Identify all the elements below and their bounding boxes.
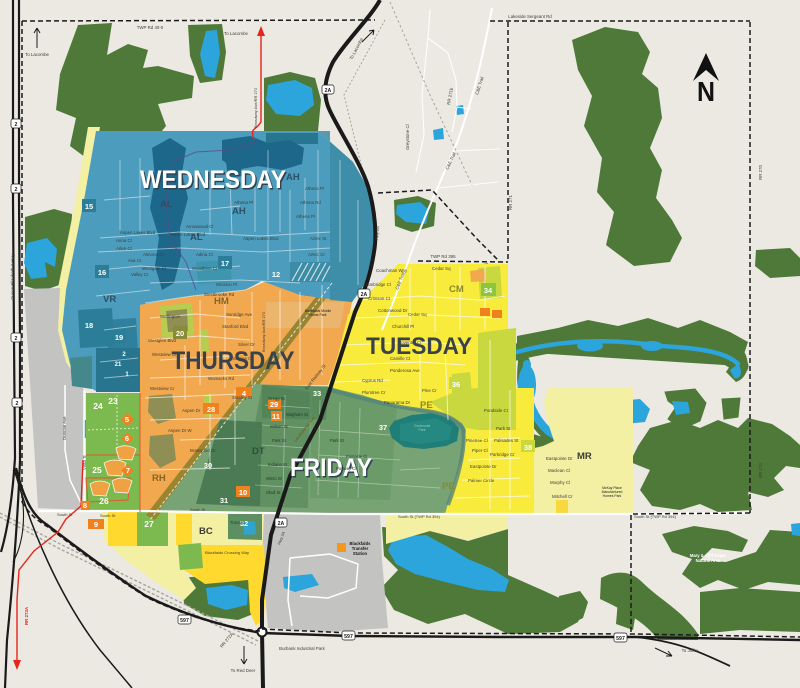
- svg-text:CM: CM: [449, 284, 464, 295]
- svg-text:Coventry Cl: Coventry Cl: [398, 340, 421, 345]
- svg-text:6: 6: [125, 434, 129, 443]
- svg-text:Waghorn St: Waghorn St: [286, 412, 309, 417]
- svg-text:South St: South St: [57, 512, 73, 517]
- svg-text:Westview Cr: Westview Cr: [150, 386, 175, 391]
- svg-text:Aspen Lakes Blvd: Aspen Lakes Blvd: [170, 232, 206, 237]
- svg-text:18: 18: [85, 321, 93, 330]
- svg-text:24: 24: [93, 401, 103, 411]
- svg-text:Palmer Circle: Palmer Circle: [468, 478, 495, 483]
- svg-text:TUESDAY: TUESDAY: [366, 333, 472, 360]
- svg-text:Panorama Dr: Panorama Dr: [384, 400, 411, 405]
- svg-text:MR: MR: [577, 451, 592, 462]
- svg-text:To Joffre: To Joffre: [682, 648, 699, 653]
- svg-text:Aspen Dr: Aspen Dr: [182, 408, 201, 413]
- svg-text:Woodbine Cl: Woodbine Cl: [192, 266, 217, 271]
- svg-text:Plumtree Cr: Plumtree Cr: [362, 390, 386, 395]
- svg-text:597: 597: [344, 634, 353, 640]
- svg-text:31: 31: [220, 496, 228, 505]
- svg-text:23: 23: [108, 396, 118, 406]
- svg-text:17: 17: [221, 259, 229, 268]
- svg-text:Duncan Ave: Duncan Ave: [62, 416, 67, 440]
- svg-text:Wilson St: Wilson St: [270, 424, 289, 429]
- svg-text:Coachman Way: Coachman Way: [376, 268, 408, 273]
- svg-text:12: 12: [272, 270, 280, 279]
- svg-text:Park St: Park St: [496, 426, 511, 431]
- svg-text:Cyprus Rd: Cyprus Rd: [362, 378, 383, 383]
- svg-text:2: 2: [16, 401, 19, 407]
- svg-text:TWP Rd 395: TWP Rd 395: [430, 254, 456, 259]
- svg-text:Park: Park: [419, 428, 426, 432]
- svg-text:Station: Station: [353, 551, 368, 556]
- svg-text:Cedar Sq: Cedar Sq: [432, 266, 451, 271]
- svg-text:Park St: Park St: [330, 438, 345, 443]
- svg-text:Womacks Rd: Womacks Rd: [208, 376, 235, 381]
- svg-text:Valley Cr: Valley Cr: [131, 272, 149, 277]
- svg-text:Churchill Pl: Churchill Pl: [392, 324, 414, 329]
- svg-text:Stanford Blvd: Stanford Blvd: [222, 324, 249, 329]
- svg-text:Murphy Cl: Murphy Cl: [550, 480, 570, 485]
- svg-text:11: 11: [272, 412, 280, 421]
- svg-text:Sunrise Cl: Sunrise Cl: [232, 356, 252, 361]
- svg-text:34: 34: [484, 286, 493, 295]
- svg-text:Eastpointe Dr: Eastpointe Dr: [546, 456, 573, 461]
- svg-text:Westview Cr: Westview Cr: [152, 352, 177, 357]
- svg-text:To Red Deer: To Red Deer: [231, 668, 256, 673]
- svg-text:37: 37: [379, 423, 387, 432]
- svg-text:Pinetree Cl: Pinetree Cl: [466, 438, 488, 443]
- svg-text:7: 7: [126, 466, 130, 475]
- svg-text:RH: RH: [152, 473, 166, 484]
- svg-text:Silver Dr: Silver Dr: [238, 342, 255, 347]
- svg-text:Ponderosa Ave: Ponderosa Ave: [390, 368, 420, 373]
- svg-text:Branwood Dr: Branwood Dr: [190, 448, 216, 453]
- svg-text:Vista Tr: Vista Tr: [82, 455, 87, 470]
- svg-text:Mitchell Cr: Mitchell Cr: [552, 494, 573, 499]
- svg-text:Piper Cl: Piper Cl: [472, 448, 488, 453]
- svg-text:Aztec Cr: Aztec Cr: [308, 252, 325, 257]
- svg-text:Palisades St: Palisades St: [494, 438, 519, 443]
- svg-text:Aspen Dr W: Aspen Dr W: [168, 428, 193, 433]
- svg-text:Anna Cl: Anna Cl: [116, 238, 132, 243]
- svg-text:Adina Cl: Adina Cl: [196, 252, 213, 257]
- svg-text:THURSDAY: THURSDAY: [172, 347, 295, 375]
- svg-text:N: N: [697, 76, 715, 107]
- svg-text:Westbrooke Rd: Westbrooke Rd: [204, 292, 235, 297]
- svg-text:Home Park: Home Park: [310, 313, 327, 317]
- svg-text:2A: 2A: [325, 88, 332, 94]
- svg-text:RR 271: RR 271: [508, 195, 513, 210]
- svg-text:30: 30: [204, 461, 212, 470]
- svg-text:Athens Pl: Athens Pl: [305, 186, 324, 191]
- svg-text:To Lacombe: To Lacombe: [224, 31, 248, 36]
- svg-text:28: 28: [207, 405, 215, 414]
- svg-text:Burbank Industrial Park: Burbank Industrial Park: [279, 646, 325, 651]
- svg-text:Wellington: Wellington: [160, 314, 181, 319]
- svg-text:Pine Cr: Pine Cr: [422, 388, 437, 393]
- svg-text:Trout St: Trout St: [230, 520, 246, 525]
- svg-text:Cottonwood Dr: Cottonwood Dr: [378, 308, 408, 313]
- svg-text:Arrowwood Cl: Arrowwood Cl: [186, 224, 213, 229]
- svg-text:Park St: Park St: [272, 438, 287, 443]
- svg-text:Natural Area: Natural Area: [696, 558, 721, 563]
- svg-text:20: 20: [176, 329, 184, 338]
- svg-text:Aspen Lakes Blvd: Aspen Lakes Blvd: [120, 230, 156, 235]
- svg-text:HM: HM: [214, 296, 229, 307]
- svg-text:Blackfalds Crossing Way: Blackfalds Crossing Way: [205, 550, 249, 555]
- svg-text:Westglen Blvd: Westglen Blvd: [148, 338, 177, 343]
- svg-text:597: 597: [616, 636, 625, 642]
- svg-text:South St (TWP Rd 394): South St (TWP Rd 394): [398, 514, 441, 519]
- svg-text:Almond Cr: Almond Cr: [143, 252, 164, 257]
- svg-text:5: 5: [125, 415, 129, 424]
- svg-text:Portway Cl: Portway Cl: [336, 466, 356, 471]
- svg-text:Sunridge Ave: Sunridge Ave: [226, 312, 253, 317]
- svg-text:Aapen Lakes Blvd: Aapen Lakes Blvd: [243, 236, 279, 241]
- svg-text:BC: BC: [199, 526, 213, 537]
- svg-text:29: 29: [270, 400, 278, 409]
- svg-text:597: 597: [180, 618, 189, 624]
- svg-text:Eastpointe Dr: Eastpointe Dr: [470, 464, 497, 469]
- svg-text:33: 33: [313, 389, 321, 398]
- svg-text:RR 270: RR 270: [758, 463, 763, 478]
- svg-text:Shull St: Shull St: [266, 490, 281, 495]
- svg-text:AH: AH: [232, 206, 246, 217]
- svg-text:Crimson Ct: Crimson Ct: [368, 296, 391, 301]
- svg-text:16: 16: [98, 268, 106, 277]
- svg-text:2: 2: [15, 187, 18, 193]
- svg-text:Parkridge Cr: Parkridge Cr: [490, 452, 515, 457]
- svg-text:RR 270: RR 270: [758, 165, 763, 180]
- svg-text:South St: South St: [190, 507, 206, 512]
- svg-text:To Lacombe: To Lacombe: [25, 52, 49, 57]
- svg-text:Arlen Cl: Arlen Cl: [116, 246, 132, 251]
- svg-text:WEDNESDAY: WEDNESDAY: [140, 166, 286, 194]
- svg-text:Gregg St: Gregg St: [268, 396, 286, 401]
- svg-text:25: 25: [92, 465, 102, 475]
- svg-text:Broadway Ave/RR 272: Broadway Ave/RR 272: [253, 87, 258, 128]
- svg-text:36: 36: [452, 380, 460, 389]
- svg-text:RR 273A: RR 273A: [24, 606, 29, 625]
- svg-text:TWP Rd 40-0: TWP Rd 40-0: [137, 25, 164, 30]
- svg-text:VR: VR: [103, 294, 116, 305]
- svg-text:Winston Pl: Winston Pl: [216, 282, 237, 287]
- svg-text:Indiana St: Indiana St: [268, 462, 288, 467]
- svg-text:19: 19: [115, 333, 123, 342]
- svg-text:27: 27: [144, 519, 154, 529]
- svg-text:2: 2: [15, 336, 18, 342]
- svg-text:Cedar Sq: Cedar Sq: [408, 312, 427, 317]
- svg-text:21: 21: [115, 362, 122, 368]
- svg-text:AL: AL: [160, 199, 173, 210]
- svg-text:Athena Rd: Athena Rd: [300, 200, 321, 205]
- svg-text:Pondside Cr: Pondside Cr: [484, 408, 509, 413]
- svg-text:8: 8: [83, 501, 87, 510]
- svg-text:South St (TWP Rd 394): South St (TWP Rd 394): [634, 514, 677, 519]
- svg-text:15: 15: [85, 202, 93, 211]
- svg-text:DT: DT: [252, 446, 265, 457]
- svg-text:Homes Park: Homes Park: [603, 494, 622, 498]
- svg-text:Broadway Ave/RR 272: Broadway Ave/RR 272: [261, 311, 266, 352]
- svg-text:Camille Ct: Camille Ct: [390, 356, 411, 361]
- svg-text:AH: AH: [286, 172, 300, 183]
- svg-text:38: 38: [524, 443, 532, 452]
- svg-text:2A: 2A: [278, 521, 285, 527]
- svg-text:Lakeside Sergeant Rd: Lakeside Sergeant Rd: [508, 14, 552, 19]
- svg-text:Queen Elizabeth II Hwy: Queen Elizabeth II Hwy: [10, 253, 15, 300]
- svg-text:Westgate Cr: Westgate Cr: [142, 266, 167, 271]
- svg-text:26: 26: [99, 496, 109, 506]
- svg-text:Pinnacle Cl: Pinnacle Cl: [346, 454, 367, 459]
- svg-text:PE: PE: [442, 481, 455, 492]
- svg-text:Cambridge Cl: Cambridge Cl: [364, 282, 391, 287]
- svg-text:Athena Pl: Athena Pl: [234, 200, 253, 205]
- svg-text:Aztec St: Aztec St: [310, 236, 327, 241]
- svg-text:Maclean Cl: Maclean Cl: [548, 468, 570, 473]
- svg-text:PE: PE: [420, 400, 433, 411]
- svg-text:2A: 2A: [361, 292, 368, 298]
- svg-text:2: 2: [15, 122, 18, 128]
- svg-text:South St: South St: [100, 513, 116, 518]
- svg-text:10: 10: [239, 488, 247, 497]
- svg-text:Ava Cr: Ava Cr: [128, 258, 142, 263]
- svg-text:Winto St: Winto St: [266, 476, 283, 481]
- svg-text:Athens Pl: Athens Pl: [296, 214, 315, 219]
- svg-text:9: 9: [94, 520, 98, 529]
- svg-text:Greystone Cl: Greystone Cl: [405, 124, 410, 150]
- svg-text:Stanley St: Stanley St: [232, 395, 253, 400]
